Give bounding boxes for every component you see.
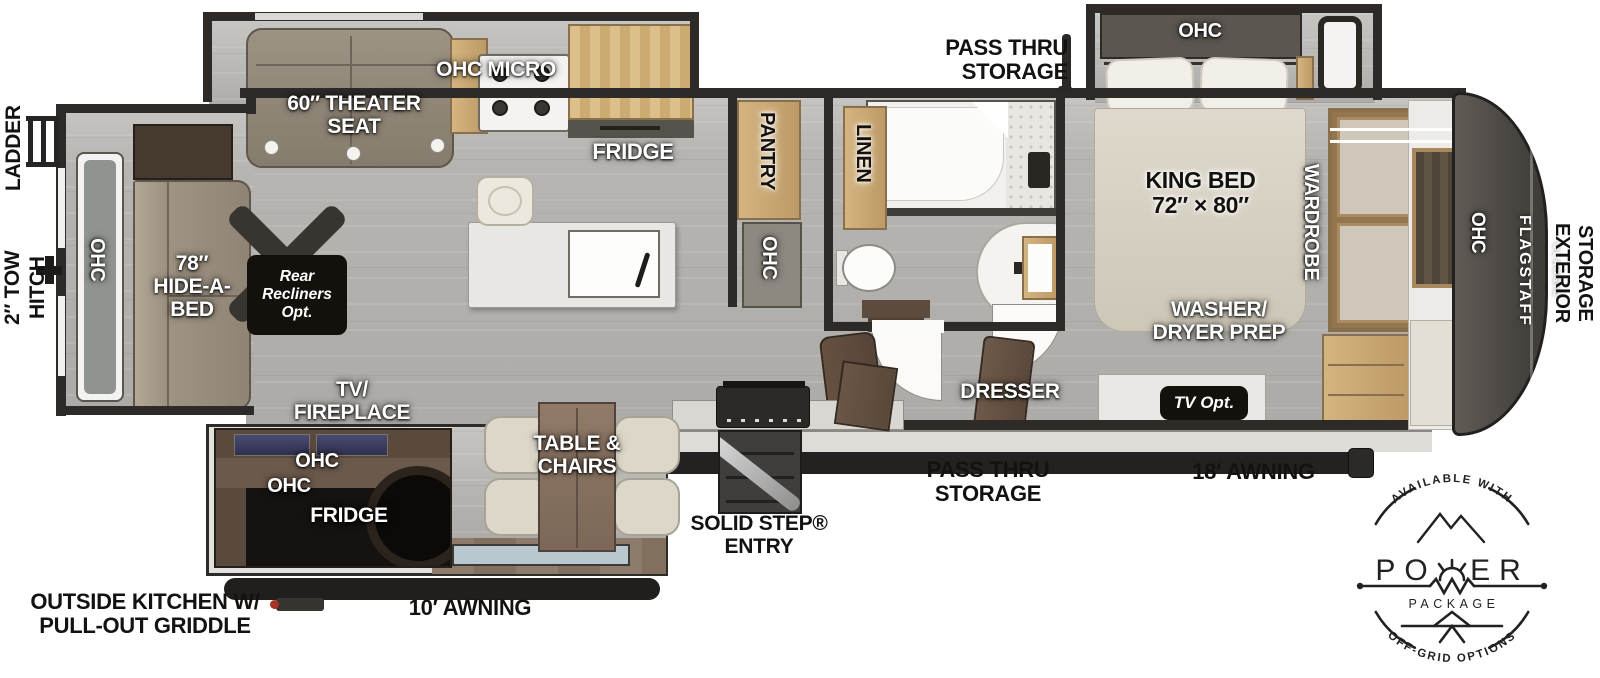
- wardrobe-label: WARDROBE: [1300, 164, 1322, 281]
- bedroom-slide-wall-right: [1373, 4, 1382, 100]
- badge-power-left: PO: [1375, 554, 1436, 587]
- tv-option-box: TV Opt.: [1160, 386, 1248, 420]
- fridge-label: FRIDGE: [578, 140, 688, 164]
- rear-slide-wall-top: [56, 104, 254, 113]
- ladder-rung: [41, 116, 46, 167]
- entry-steps: [718, 430, 802, 514]
- dinette-ohc-label: OHC: [254, 475, 324, 497]
- entry-door-panel: [834, 360, 898, 431]
- pantry-wall: [728, 95, 737, 307]
- refrigerator-handle: [600, 126, 660, 130]
- vanity-basin: [1028, 244, 1052, 292]
- badge-dot: [1357, 583, 1363, 589]
- theater-seat-label: 60″ THEATER SEAT: [272, 92, 436, 138]
- hall-ohc-label: OHC: [758, 236, 780, 280]
- front-trim-stripe: [1330, 128, 1462, 131]
- awning-10-label: 10′ AWNING: [390, 596, 550, 620]
- theater-headrest-line: [256, 64, 446, 66]
- griddle-knob: [727, 419, 801, 422]
- bottom-wall: [806, 420, 1466, 430]
- griddle: [716, 386, 810, 428]
- ohc-micro-label: OHC MICRO: [420, 58, 572, 81]
- bedroom-slide-wall-left: [1086, 4, 1095, 100]
- outside-kitchen-cabinet: [214, 428, 452, 568]
- bath-door-gap: [872, 320, 944, 333]
- drawer-line: [1328, 394, 1404, 396]
- outside-fridge-label: FRIDGE: [294, 504, 404, 527]
- drawer-line: [1328, 364, 1404, 366]
- mountain-icon: [1418, 514, 1484, 542]
- exterior-storage-label: EXTERIOR STORAGE: [1550, 198, 1596, 348]
- rear-ohc-label: OHC: [86, 238, 108, 282]
- pillow: [1105, 56, 1195, 115]
- bath-wall-bottom: [824, 322, 1064, 331]
- cupholder: [430, 138, 445, 153]
- front-ohc-label: OHC: [1466, 212, 1487, 253]
- outside-kitchen-label: OUTSIDE KITCHEN W/ PULL-OUT GRIDDLE: [10, 590, 280, 638]
- wardrobe-pane: [1337, 223, 1411, 323]
- bedroom-slide-wall-top: [1086, 4, 1382, 13]
- pantry-label: PANTRY: [756, 112, 778, 190]
- svg-text:OFF-GRID OPTIONS: OFF-GRID OPTIONS: [1385, 629, 1519, 665]
- badge-arc-bottom-text: OFF-GRID OPTIONS: [1385, 629, 1519, 665]
- pass-thru-top-label: PASS THRU STORAGE: [912, 36, 1068, 84]
- rv-floorplan: Rear Recliners Opt.: [0, 0, 1600, 678]
- hide-a-bed-label: 78″ HIDE-A- BED: [126, 252, 258, 321]
- sun-ray: [1460, 564, 1465, 571]
- bath-step: [862, 300, 930, 318]
- grab-handle-tip: [1058, 86, 1072, 92]
- ladder-icon: [26, 114, 66, 172]
- wardrobe-pane: [1337, 117, 1411, 217]
- bedroom-chest: [1322, 334, 1410, 426]
- shower-head-icon: [1028, 152, 1050, 188]
- kitchen-slide-wall-left: [203, 12, 212, 102]
- awning-bracket: [276, 598, 324, 611]
- power-package-badge: AVAILABLE WITH OFF-GRID OPTIONS PO ER PA…: [1350, 462, 1555, 678]
- badge-power-right: ER: [1470, 554, 1530, 587]
- pass-thru-bottom-label: PASS THRU STORAGE: [908, 458, 1068, 506]
- kitchen-slide-wall-right: [690, 12, 699, 98]
- rear-overhead-cabinet: [133, 124, 233, 180]
- front-trim-stripe: [1330, 140, 1462, 143]
- solid-step-label: SOLID STEP® ENTRY: [678, 512, 840, 558]
- bedroom-window: [1318, 16, 1362, 94]
- ladder-rung: [28, 116, 33, 167]
- dresser-label: DRESSER: [945, 380, 1075, 403]
- dinette-chair: [614, 478, 680, 536]
- burner: [492, 100, 508, 116]
- svg-text:AVAILABLE WITH: AVAILABLE WITH: [1389, 473, 1515, 506]
- table-chairs-label: TABLE & CHAIRS: [492, 432, 662, 478]
- shower: [866, 100, 1056, 212]
- sun-ray: [1439, 564, 1444, 571]
- pillow: [1199, 56, 1289, 115]
- rear-window: [58, 168, 65, 248]
- shower-pan: [874, 107, 1004, 201]
- rear-recliners-option-box: Rear Recliners Opt.: [247, 255, 347, 335]
- bath-wall-right: [1056, 95, 1065, 331]
- cupholder: [346, 146, 361, 161]
- griddle-handle: [723, 381, 805, 388]
- toilet: [842, 244, 896, 292]
- tv-fireplace-label: TV/ FIREPLACE: [278, 378, 426, 424]
- bedroom-ohc-label: OHC: [1150, 20, 1250, 42]
- kitchen-slide-window: [255, 13, 423, 20]
- island-stool: [476, 176, 534, 226]
- vanity-faucet: [1014, 262, 1022, 274]
- brand-name: FLAGSTAFF: [1516, 196, 1534, 346]
- bath-wall-left: [824, 95, 833, 331]
- king-bed-label: KING BED 72″ × 80″: [1108, 168, 1293, 219]
- linen-label: LINEN: [852, 124, 874, 183]
- tow-hitch-label: 2″ TOW HITCH: [0, 212, 50, 364]
- badge-dot: [1541, 583, 1547, 589]
- awning-18-label: 18′ AWNING: [1176, 460, 1331, 484]
- stool-ring: [488, 186, 522, 216]
- shower-glass: [866, 208, 1056, 216]
- dinette-ohc-label: OHC: [282, 450, 352, 472]
- badge-arc-top-text: AVAILABLE WITH: [1389, 473, 1515, 506]
- rear-window: [58, 296, 65, 376]
- tent-legs: [1440, 626, 1464, 642]
- rear-slide-wall-bottom: [56, 406, 254, 415]
- ladder-rung: [54, 116, 59, 167]
- refrigerator: [568, 24, 694, 120]
- cupholder: [264, 140, 279, 155]
- badge-package: PACKAGE: [1408, 597, 1499, 611]
- burner: [534, 100, 550, 116]
- washer-dryer-label: WASHER/ DRYER PREP: [1138, 298, 1300, 344]
- ladder-label: LADDER: [2, 92, 25, 204]
